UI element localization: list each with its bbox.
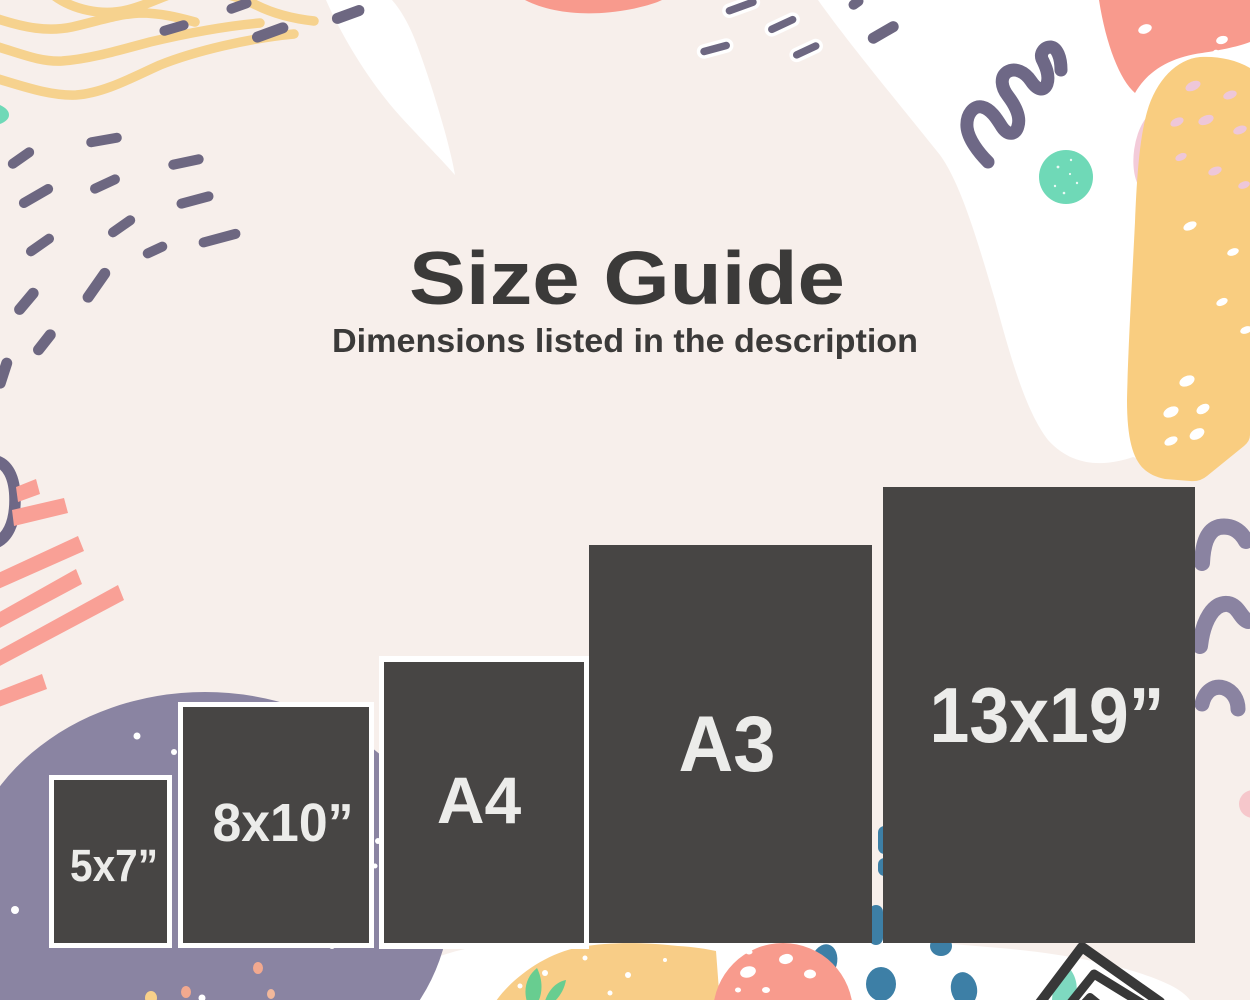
svg-text:5x7”: 5x7”	[70, 840, 158, 891]
svg-text:A4: A4	[437, 763, 522, 837]
svg-text:Dimensions listed in the descr: Dimensions listed in the description	[332, 322, 918, 359]
svg-text:13x19”: 13x19”	[930, 671, 1165, 759]
svg-text:A3: A3	[679, 699, 776, 788]
svg-text:8x10”: 8x10”	[213, 793, 354, 853]
svg-text:Size Guide: Size Guide	[409, 236, 845, 320]
